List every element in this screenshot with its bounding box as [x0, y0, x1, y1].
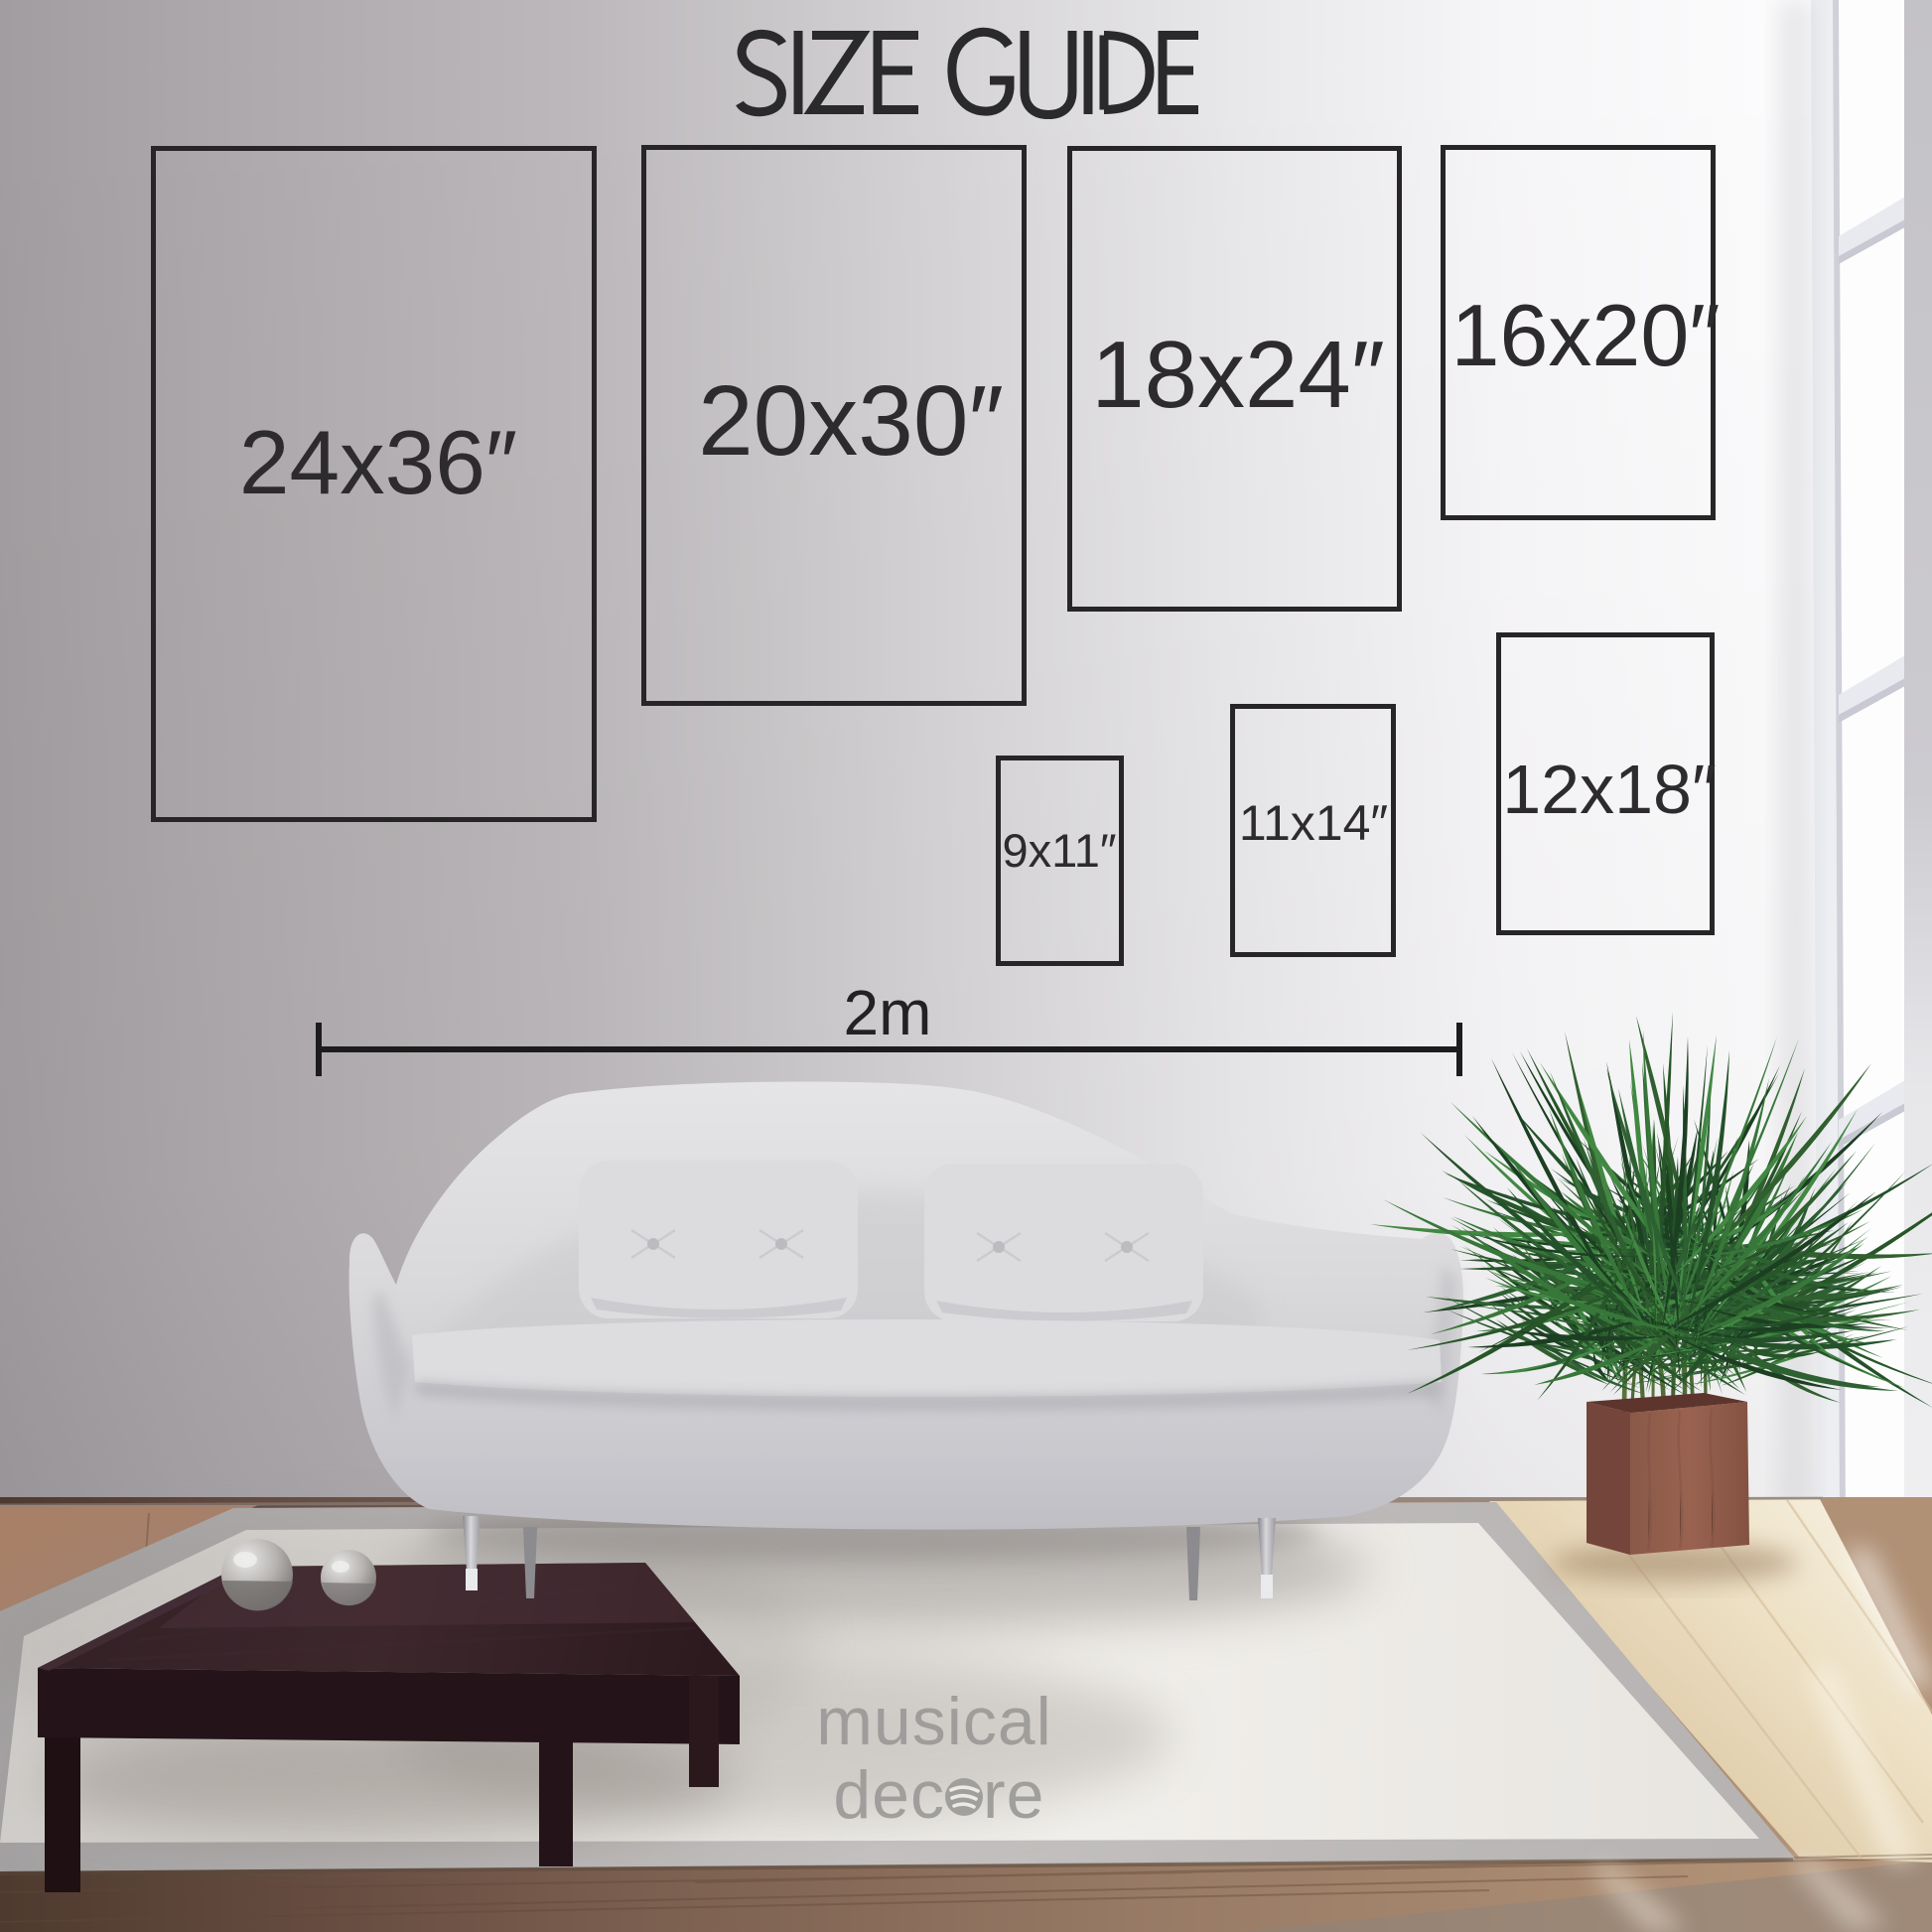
svg-text:musical: musical [816, 1684, 1052, 1759]
svg-text:16x20″: 16x20″ [1451, 286, 1721, 384]
svg-text:dec: dec [833, 1757, 945, 1833]
svg-text:re: re [983, 1757, 1044, 1833]
svg-text:12x18″: 12x18″ [1502, 751, 1717, 828]
svg-text:9x11″: 9x11″ [1002, 824, 1116, 877]
svg-text:24x36″: 24x36″ [239, 413, 517, 513]
svg-text:18x24″: 18x24″ [1091, 322, 1385, 428]
svg-text:20x30″: 20x30″ [698, 365, 1004, 477]
svg-text:2m: 2m [844, 977, 932, 1048]
svg-text:11x14″: 11x14″ [1239, 795, 1388, 851]
